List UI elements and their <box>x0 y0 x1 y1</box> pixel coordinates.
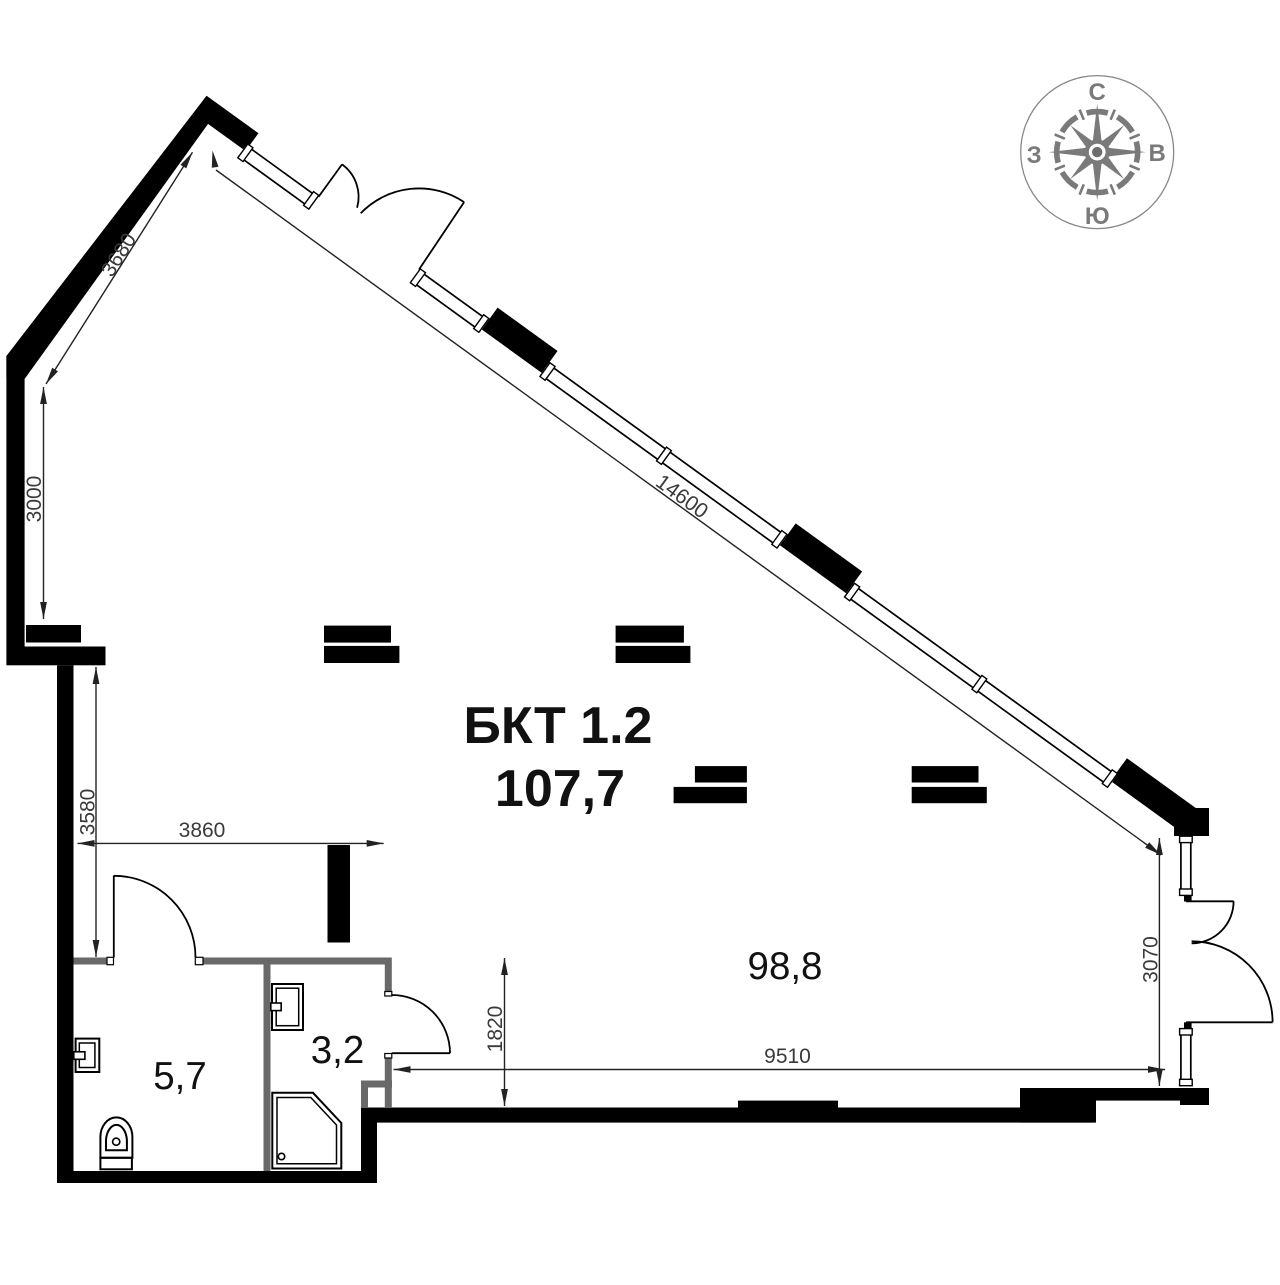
svg-text:З: З <box>1027 142 1042 169</box>
svg-text:1820: 1820 <box>484 1006 507 1053</box>
svg-text:3070: 3070 <box>1140 936 1163 983</box>
svg-text:9510: 9510 <box>764 1045 811 1068</box>
svg-text:БКТ 1.2: БКТ 1.2 <box>464 697 653 755</box>
svg-text:3000: 3000 <box>23 476 46 523</box>
svg-text:98,8: 98,8 <box>748 945 823 988</box>
svg-text:107,7: 107,7 <box>495 760 625 818</box>
svg-text:В: В <box>1149 140 1166 167</box>
svg-text:Ю: Ю <box>1085 203 1110 230</box>
svg-text:5,7: 5,7 <box>153 1055 207 1098</box>
svg-text:3580: 3580 <box>77 789 100 836</box>
svg-text:С: С <box>1089 79 1106 106</box>
svg-text:3,2: 3,2 <box>311 1029 365 1072</box>
svg-text:3860: 3860 <box>179 819 226 842</box>
